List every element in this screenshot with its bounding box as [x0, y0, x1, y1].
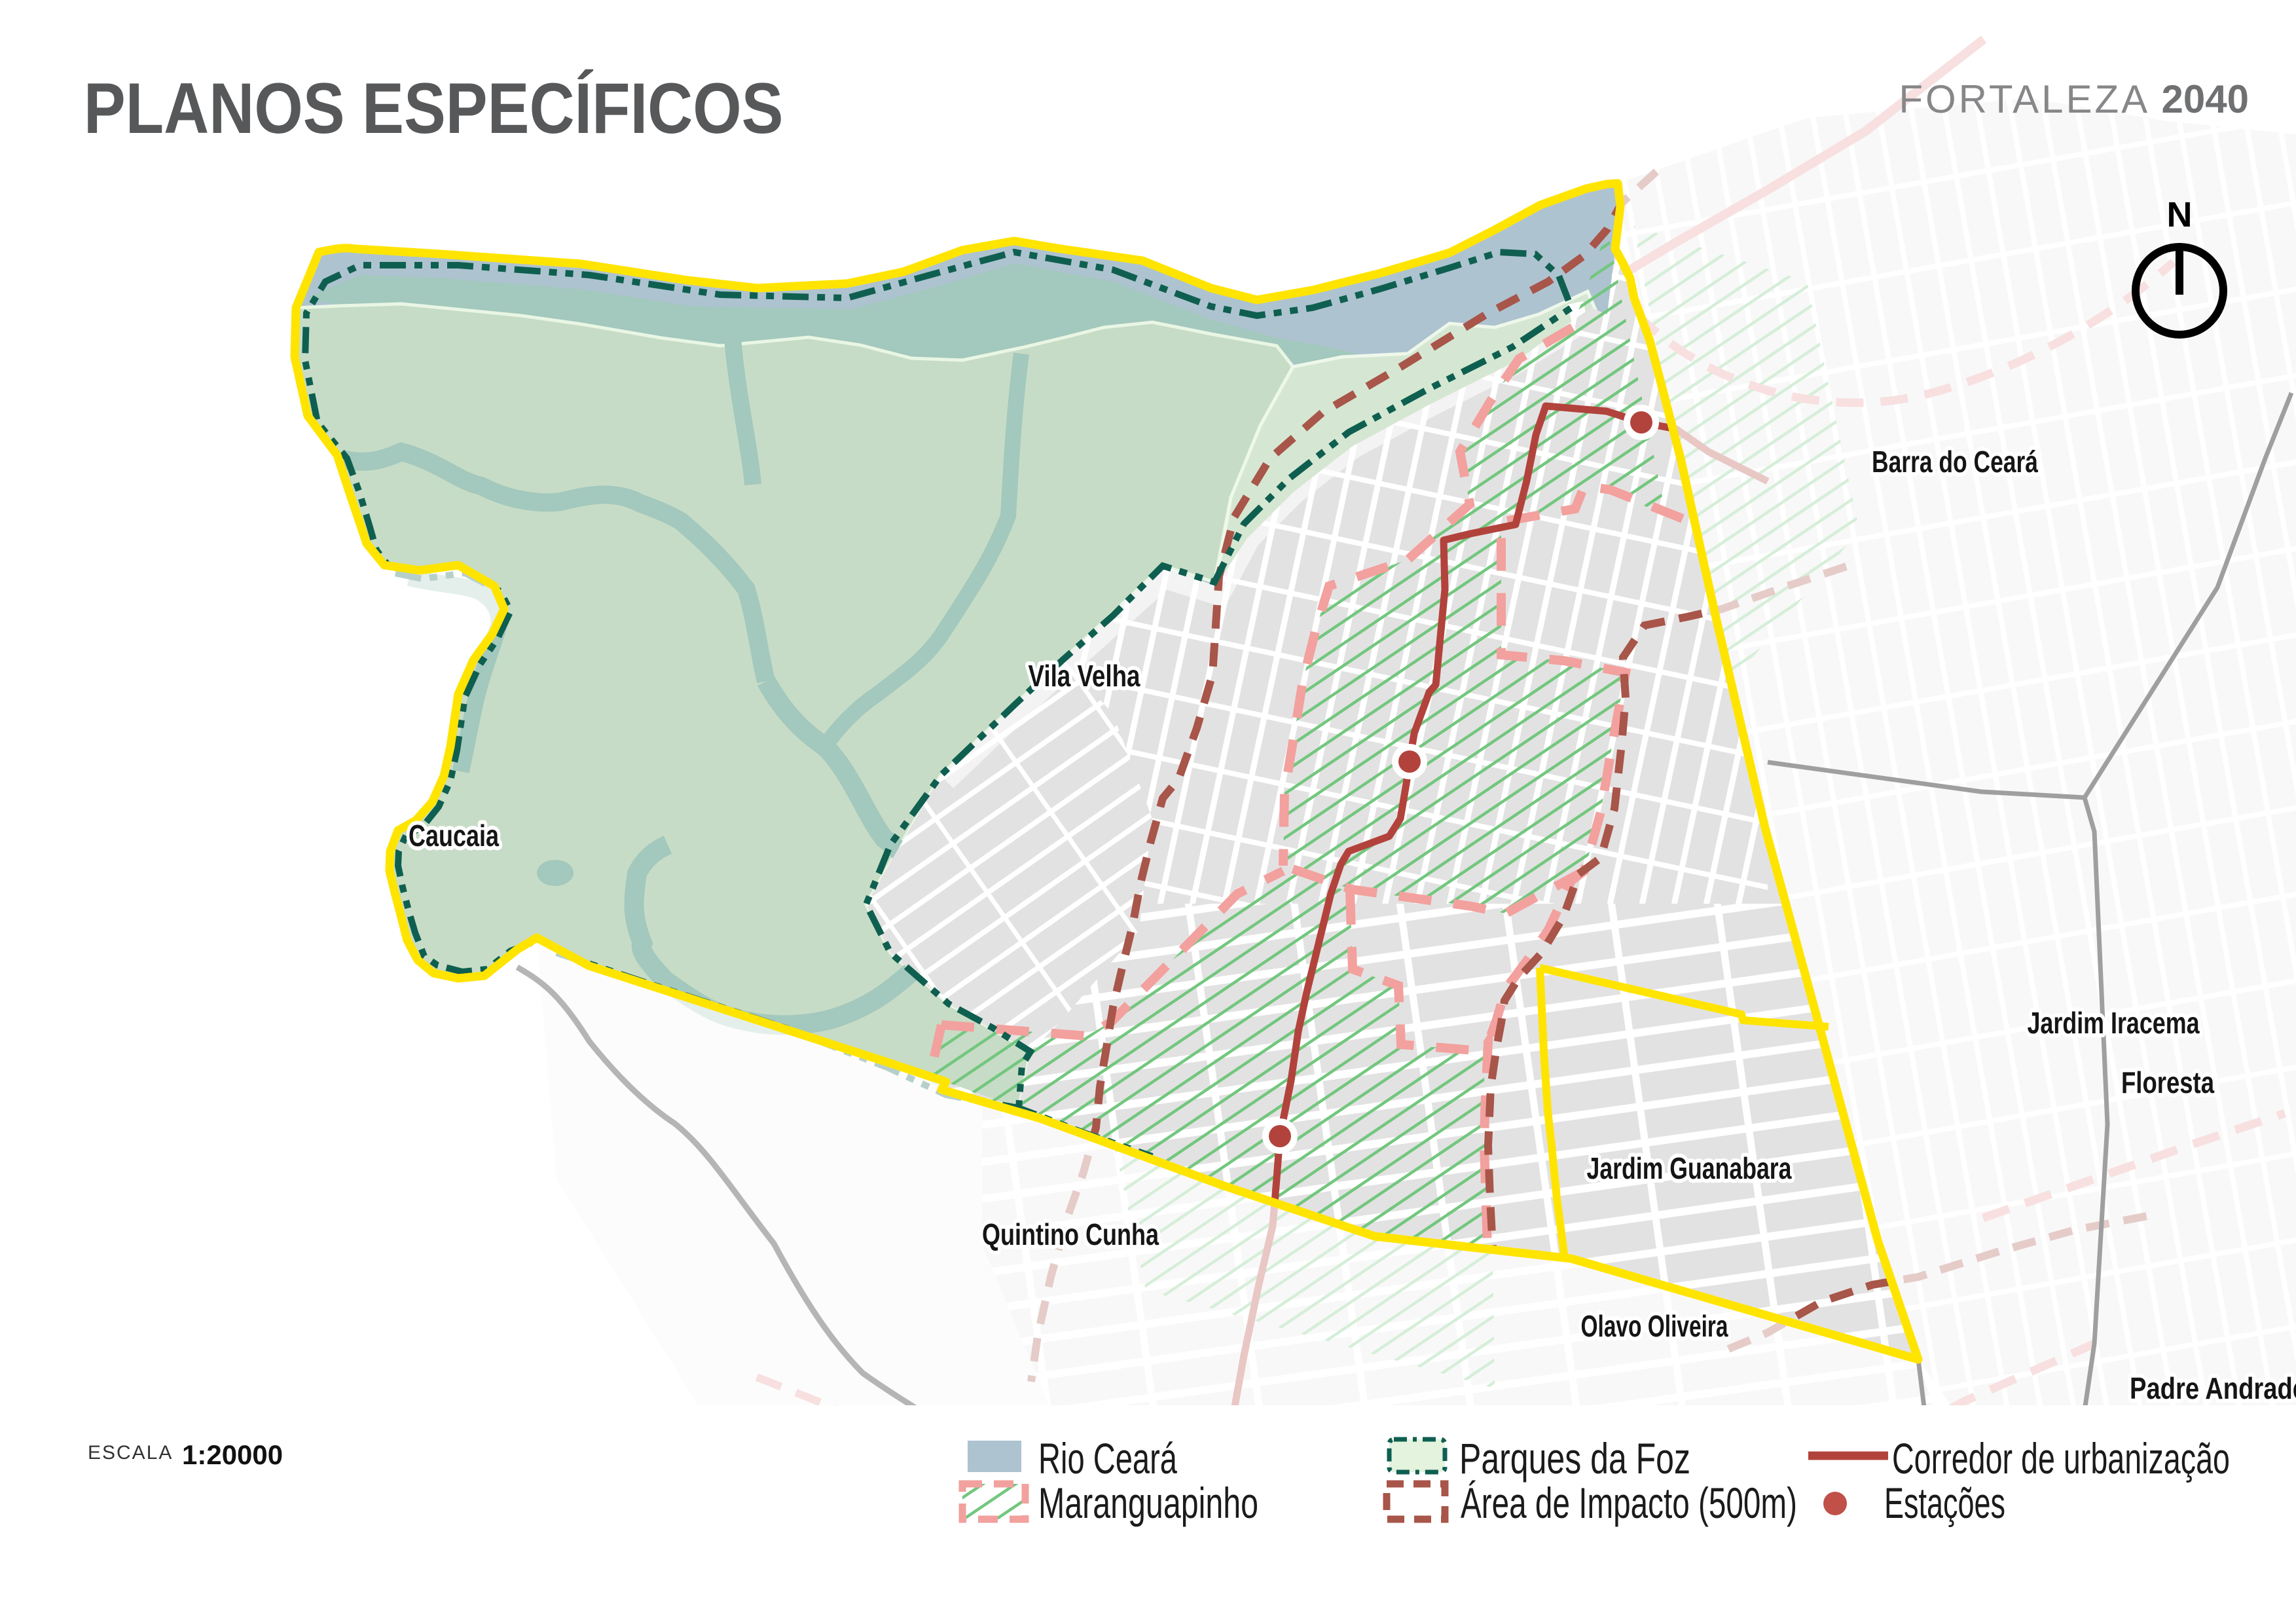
svg-text:ESCALA: ESCALA — [88, 1442, 173, 1464]
svg-text:Corredor de urbanização: Corredor de urbanização — [1892, 1434, 2230, 1483]
svg-text:Área de Impacto (500m): Área de Impacto (500m) — [1461, 1479, 1797, 1527]
svg-text:Padre Andrade: Padre Andrade — [2130, 1371, 2296, 1405]
svg-text:Jardim Guanabara: Jardim Guanabara — [1587, 1151, 1792, 1185]
svg-text:Vila Velha: Vila Velha — [1029, 659, 1140, 693]
svg-text:Jardim Iracema: Jardim Iracema — [2028, 1006, 2200, 1040]
svg-text:Quintino Cunha: Quintino Cunha — [982, 1217, 1159, 1251]
svg-text:FORTALEZA 2040: FORTALEZA 2040 — [1899, 77, 2249, 121]
svg-text:Barra do Ceará: Barra do Ceará — [1872, 445, 2038, 479]
svg-text:Caucaia: Caucaia — [409, 819, 499, 853]
svg-text:Floresta: Floresta — [2121, 1065, 2214, 1099]
svg-text:1:20000: 1:20000 — [182, 1439, 283, 1470]
svg-text:Maranguapinho: Maranguapinho — [1038, 1479, 1258, 1527]
svg-text:Estações: Estações — [1884, 1479, 2005, 1527]
svg-text:Olavo Oliveira: Olavo Oliveira — [1581, 1309, 1728, 1343]
svg-text:Parques da Foz: Parques da Foz — [1459, 1434, 1690, 1483]
svg-text:Rio Ceará: Rio Ceará — [1038, 1434, 1177, 1483]
svg-text:PLANOS ESPECÍFICOS: PLANOS ESPECÍFICOS — [84, 68, 784, 149]
svg-text:N: N — [2167, 195, 2193, 234]
